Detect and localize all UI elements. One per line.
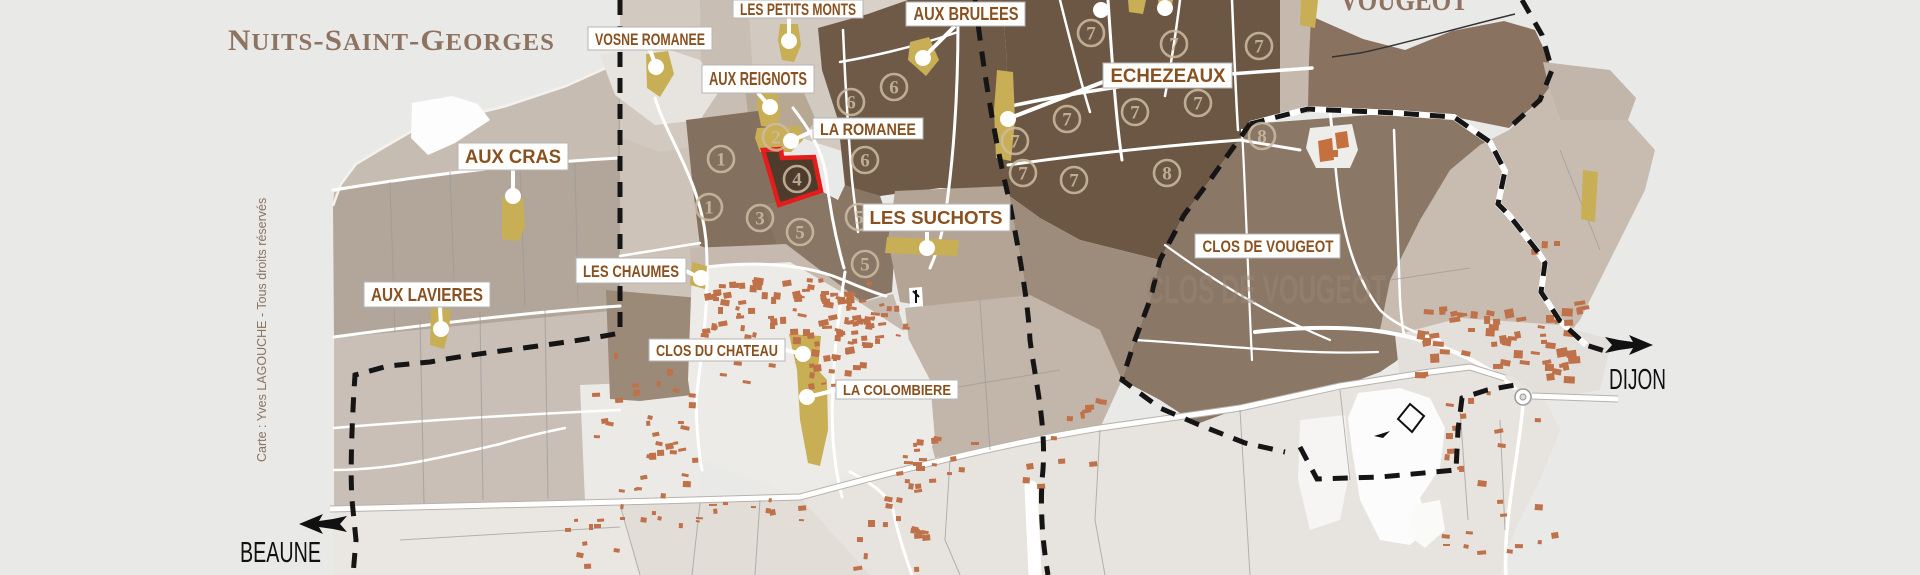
svg-text:2: 2 [771,128,781,149]
svg-text:7: 7 [1086,24,1096,45]
svg-text:7: 7 [1010,132,1020,153]
svg-text:1: 1 [716,150,726,171]
svg-text:7: 7 [1169,35,1179,56]
svg-text:5: 5 [860,255,870,276]
svg-text:1: 1 [704,198,714,219]
svg-text:CLOS DE VOUGEOT: CLOS DE VOUGEOT [1146,268,1386,312]
svg-text:CLOS DE VOUGEOT: CLOS DE VOUGEOT [1203,237,1334,256]
svg-text:7: 7 [1130,103,1140,124]
svg-text:LA COLOMBIERE: LA COLOMBIERE [843,382,951,399]
svg-text:AUX BRULEES: AUX BRULEES [914,4,1019,24]
svg-text:8: 8 [1162,164,1172,185]
svg-text:7: 7 [1069,171,1079,192]
svg-text:LES SUCHOTS: LES SUCHOTS [870,208,1003,228]
svg-text:8: 8 [1257,127,1267,148]
svg-text:6: 6 [846,93,856,114]
svg-text:AUX CRAS: AUX CRAS [465,147,561,168]
svg-text:ECHEZEAUX: ECHEZEAUX [1111,66,1226,87]
svg-text:5: 5 [854,208,864,229]
svg-text:6: 6 [860,151,870,172]
svg-text:Carte : Yves LAGOUCHE - Tous d: Carte : Yves LAGOUCHE - Tous droits rése… [255,198,269,462]
svg-text:6: 6 [889,78,899,99]
svg-text:LES PETITS MONTS: LES PETITS MONTS [740,0,856,19]
svg-text:LES CHAUMES: LES CHAUMES [583,262,679,281]
svg-text:AUX LAVIERES: AUX LAVIERES [371,285,483,305]
svg-text:7: 7 [1018,164,1028,185]
svg-text:3: 3 [755,209,765,230]
svg-text:4: 4 [792,170,802,191]
svg-text:5: 5 [795,223,805,244]
svg-text:CLOS DU CHATEAU: CLOS DU CHATEAU [656,343,778,360]
svg-text:7: 7 [1254,37,1264,58]
svg-text:DIJON: DIJON [1609,364,1666,396]
svg-text:LA ROMANEE: LA ROMANEE [820,120,916,139]
svg-text:BEAUNE: BEAUNE [240,537,321,569]
svg-text:VOSNE ROMANEE: VOSNE ROMANEE [595,30,705,49]
svg-text:7: 7 [1193,94,1203,115]
svg-text:7: 7 [1062,110,1072,131]
svg-text:AUX REIGNOTS: AUX REIGNOTS [709,69,807,89]
svg-text:VOUGEOT: VOUGEOT [1340,0,1468,17]
